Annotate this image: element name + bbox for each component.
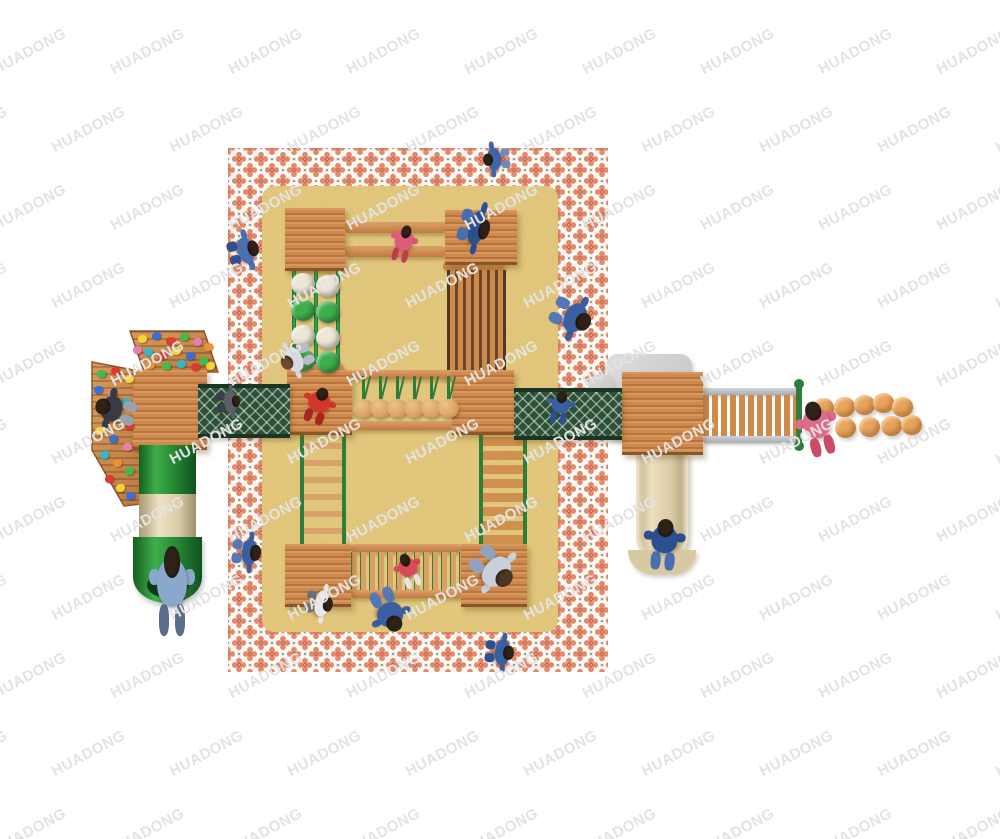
child-leg bbox=[822, 433, 836, 454]
watermark-text: HUADONG bbox=[108, 25, 187, 78]
tube-slide-opening bbox=[147, 572, 189, 598]
watermark-text: HUADONG bbox=[698, 493, 777, 546]
stepping-ball bbox=[834, 397, 855, 417]
watermark-text: HUADONG bbox=[462, 25, 541, 78]
child-leg bbox=[175, 604, 186, 636]
platform-top-left bbox=[285, 208, 345, 271]
watermark-text: HUADONG bbox=[757, 259, 836, 312]
watermark-text: HUADONG bbox=[757, 571, 836, 624]
watermark-text: HUADONG bbox=[993, 103, 1000, 156]
watermark-text: HUADONG bbox=[875, 415, 954, 468]
watermark-text: HUADONG bbox=[108, 649, 187, 702]
watermark-text: HUADONG bbox=[816, 181, 895, 234]
watermark-text: HUADONG bbox=[226, 25, 305, 78]
watermark-text: HUADONG bbox=[0, 181, 69, 234]
watermark-text: HUADONG bbox=[875, 259, 954, 312]
platform-center-right bbox=[452, 370, 514, 435]
plank-bridge-bottom-beam bbox=[351, 590, 461, 598]
watermark-text: HUADONG bbox=[108, 181, 187, 234]
watermark-text: HUADONG bbox=[875, 571, 954, 624]
plank-bridge-top-beam bbox=[351, 544, 461, 552]
watermark-text: HUADONG bbox=[934, 181, 1000, 234]
child-arm bbox=[825, 410, 837, 422]
watermark-text: HUADONG bbox=[403, 727, 482, 780]
child-head bbox=[803, 400, 823, 423]
watermark-text: HUADONG bbox=[285, 727, 364, 780]
watermark-text: HUADONG bbox=[0, 493, 69, 546]
watermark-text: HUADONG bbox=[0, 103, 10, 156]
watermark-text: HUADONG bbox=[934, 493, 1000, 546]
walkway-rail-bottom bbox=[703, 436, 800, 443]
watermark-text: HUADONG bbox=[108, 805, 187, 839]
watermark-text: HUADONG bbox=[0, 337, 69, 390]
watermark-text: HUADONG bbox=[0, 25, 69, 78]
watermark-text: HUADONG bbox=[875, 727, 954, 780]
watermark-text: HUADONG bbox=[0, 259, 10, 312]
pod-bridge-top-beam bbox=[352, 370, 454, 379]
watermark-text: HUADONG bbox=[49, 727, 128, 780]
watermark-text: HUADONG bbox=[639, 259, 718, 312]
watermark-text: HUADONG bbox=[816, 805, 895, 839]
open-slide-exit bbox=[628, 550, 696, 574]
watermark-text: HUADONG bbox=[698, 181, 777, 234]
open-slide bbox=[636, 452, 688, 562]
wood-steps-right bbox=[479, 432, 527, 544]
watermark-text: HUADONG bbox=[0, 571, 10, 624]
watermark-text: HUADONG bbox=[226, 805, 305, 839]
walkway-end-post bbox=[796, 384, 802, 446]
plank-walkway bbox=[703, 395, 800, 436]
child-leg bbox=[808, 437, 822, 458]
ladder-left bbox=[300, 432, 346, 544]
watermark-text: HUADONG bbox=[344, 805, 423, 839]
watermark-text: HUADONG bbox=[816, 493, 895, 546]
watermark-text: HUADONG bbox=[0, 415, 10, 468]
watermark-text: HUADONG bbox=[757, 727, 836, 780]
stepping-ball bbox=[901, 415, 922, 435]
walkway-rail-top bbox=[703, 388, 800, 395]
watermark-text: HUADONG bbox=[344, 25, 423, 78]
rope-net-bridge-right bbox=[514, 388, 622, 440]
plank-balance-bridge bbox=[351, 552, 461, 590]
platform-center-left bbox=[287, 370, 352, 435]
stepping-ball bbox=[859, 417, 880, 437]
watermark-text: HUADONG bbox=[934, 805, 1000, 839]
watermark-text: HUADONG bbox=[698, 337, 777, 390]
watermark-text: HUADONG bbox=[993, 571, 1000, 624]
tower-platform-left bbox=[133, 370, 207, 450]
disc-climber-rail bbox=[314, 264, 318, 370]
watermark-text: HUADONG bbox=[934, 337, 1000, 390]
disc-climber-rail bbox=[292, 264, 296, 370]
watermark-text: HUADONG bbox=[934, 25, 1000, 78]
watermark-text: HUADONG bbox=[49, 259, 128, 312]
balance-beam-upper bbox=[345, 222, 445, 233]
platform-bottom-left bbox=[285, 544, 351, 607]
watermark-text: HUADONG bbox=[993, 415, 1000, 468]
watermark-text: HUADONG bbox=[639, 727, 718, 780]
tube-slide-middle bbox=[139, 494, 196, 538]
pod-bridge-bottom-beam bbox=[352, 421, 454, 430]
platform-top-right bbox=[445, 210, 517, 265]
child-torso bbox=[800, 406, 833, 441]
watermark-text: HUADONG bbox=[0, 727, 10, 780]
watermark-text: HUADONG bbox=[934, 649, 1000, 702]
rope-net-bridge-left bbox=[198, 384, 290, 438]
watermark-text: HUADONG bbox=[639, 103, 718, 156]
watermark-text: HUADONG bbox=[580, 805, 659, 839]
watermark-text: HUADONG bbox=[698, 649, 777, 702]
watermark-text: HUADONG bbox=[816, 337, 895, 390]
tube-slide-upper bbox=[139, 445, 196, 495]
watermark-text: HUADONG bbox=[462, 805, 541, 839]
watermark-text: HUADONG bbox=[521, 727, 600, 780]
watermark-text: HUADONG bbox=[875, 103, 954, 156]
watermark-text: HUADONG bbox=[698, 25, 777, 78]
stepping-ball bbox=[813, 398, 834, 418]
watermark-text: HUADONG bbox=[49, 103, 128, 156]
watermark-text: HUADONG bbox=[816, 25, 895, 78]
stepping-ball bbox=[881, 416, 902, 436]
stepping-ball bbox=[892, 397, 913, 417]
watermark-text: HUADONG bbox=[0, 649, 69, 702]
playground-top-view-render: HUADONGHUADONGHUADONGHUADONGHUADONGHUADO… bbox=[0, 0, 1000, 839]
watermark-text: HUADONG bbox=[757, 103, 836, 156]
disc-climber-rail bbox=[336, 264, 340, 370]
stepping-ball bbox=[873, 393, 894, 413]
watermark-text: HUADONG bbox=[698, 805, 777, 839]
watermark-text: HUADONG bbox=[167, 727, 246, 780]
watermark-text: HUADONG bbox=[639, 571, 718, 624]
watermark-text: HUADONG bbox=[580, 25, 659, 78]
watermark-text: HUADONG bbox=[49, 571, 128, 624]
stepping-ball bbox=[854, 395, 875, 415]
watermark-text: HUADONG bbox=[816, 649, 895, 702]
balance-beam-lower bbox=[345, 246, 445, 257]
watermark-text: HUADONG bbox=[993, 727, 1000, 780]
slat-ramp bbox=[447, 270, 506, 371]
platform-bottom-right bbox=[461, 544, 527, 607]
watermark-text: HUADONG bbox=[0, 805, 69, 839]
stepping-ball bbox=[835, 418, 856, 438]
child-leg bbox=[159, 604, 170, 636]
tower-platform-right bbox=[622, 372, 703, 455]
watermark-text: HUADONG bbox=[993, 259, 1000, 312]
